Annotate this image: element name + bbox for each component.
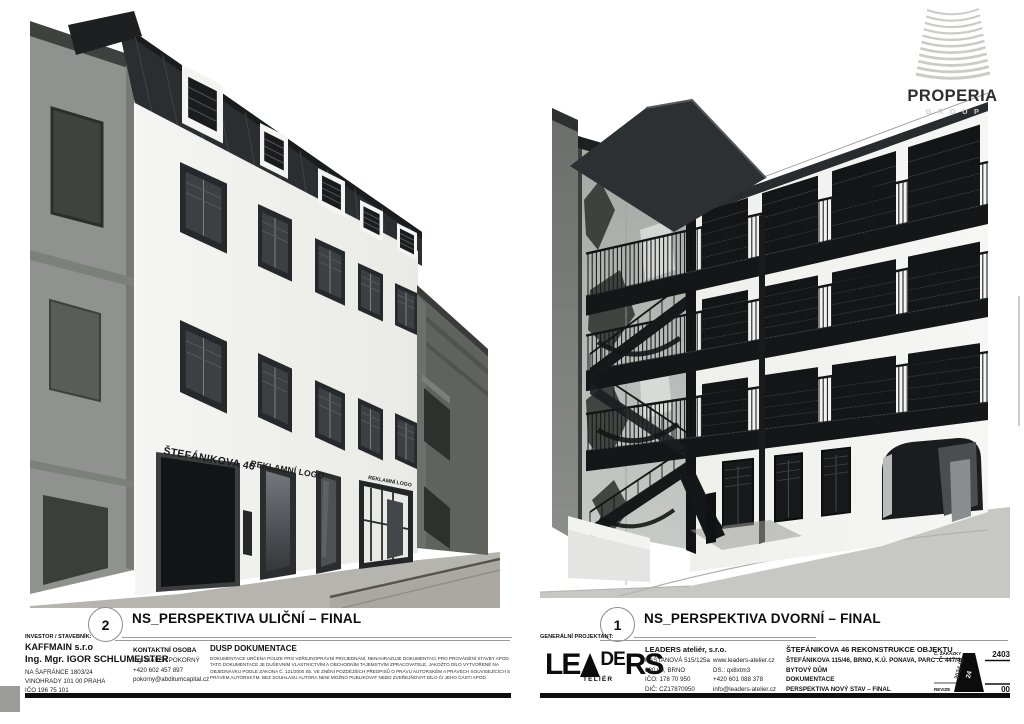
investor-label: INVESTOR / STAVEBNÍK: (25, 634, 92, 640)
properia-logo-name: PROPERIA (880, 87, 1024, 106)
leaders-databox: DS.: qx8xtm3 (713, 666, 776, 676)
rendering-courtyard-view (540, 80, 1010, 610)
contact-phone: +420 602 457 897 (133, 666, 209, 676)
sheet-edge-mark (1018, 296, 1020, 426)
rendering-street-view: ŠTEFÁNIKOVA 46 REKLAMNÍ LOGO REKLAMNÍ LO… (30, 8, 500, 608)
contact-email: pokorny@abditumcapital.cz (133, 675, 209, 685)
titleblock-bar-left (25, 693, 511, 698)
caption-underline-right (634, 637, 816, 638)
leaders-logo-atelier: TELIÉR (583, 676, 613, 683)
leaders-logo-le: LE (545, 650, 579, 680)
zakazka-number: 2403 (992, 650, 1010, 659)
contact-name: Ing. MAREK POKORNÝ (133, 656, 209, 666)
view-number-right: 1 (614, 617, 622, 633)
dusp-line: PRÁVEM AUTORSKÝM. BEZ SOUHLASU AUTORA NE… (210, 675, 510, 681)
view-title-right: NS_PERSPEKTIVA DVORNÍ – FINAL (644, 611, 881, 626)
revize-label: REVIZE (934, 687, 950, 692)
contact-column: KONTAKTNÍ OSOBA Ing. MAREK POKORNÝ +420 … (133, 647, 209, 685)
caption-underline-left (122, 637, 512, 638)
properia-logo: PROPERIA GROUP (880, 6, 1024, 116)
drawing-sheet: ŠTEFÁNIKOVA 46 REKLAMNÍ LOGO REKLAMNÍ LO… (0, 0, 1024, 724)
view-number-badge-left: 2 (88, 607, 123, 642)
projectant-label-rule (600, 640, 1008, 641)
order-revision-stamp: Č. ZAKÁZKY 2403 2024-05 24 REVIZE 00 (932, 648, 1012, 694)
contact-label: KONTAKTNÍ OSOBA (133, 647, 209, 654)
properia-logo-group: GROUP (880, 107, 1024, 116)
view-number-left: 2 (102, 617, 110, 633)
leaders-web: www.leaders-atelier.cz (713, 656, 776, 666)
titleblock-bar-right (540, 693, 1010, 698)
leaders-company: LEADERS ateliér, s.r.o. (645, 645, 726, 654)
sheet-corner-tab (0, 686, 20, 712)
properia-fan-icon (883, 6, 1023, 86)
dusp-column: DUSP DOKUMENTACE DOKUMENTACE URČENA POUZ… (210, 644, 510, 682)
leaders-logo-triangle-icon (580, 653, 600, 677)
dusp-title: DUSP DOKUMENTACE (210, 644, 510, 653)
zakazka-label: Č. ZAKÁZKY (934, 650, 961, 656)
investor-label-rule (115, 640, 510, 641)
leaders-logo-de: DE (600, 650, 624, 669)
leaders-contact-column: www.leaders-atelier.cz DS.: qx8xtm3 +420… (713, 656, 776, 694)
leaders-logo: LE DE RS TELIÉR (545, 650, 645, 692)
view-title-left: NS_PERSPEKTIVA ULIČNÍ – FINAL (132, 611, 361, 626)
dusp-line: TATO DOKUMENTACE JE DUŠEVNÍM VLASTNICTVÍ… (210, 662, 510, 668)
leaders-phone: +420 601 088 378 (713, 675, 776, 685)
